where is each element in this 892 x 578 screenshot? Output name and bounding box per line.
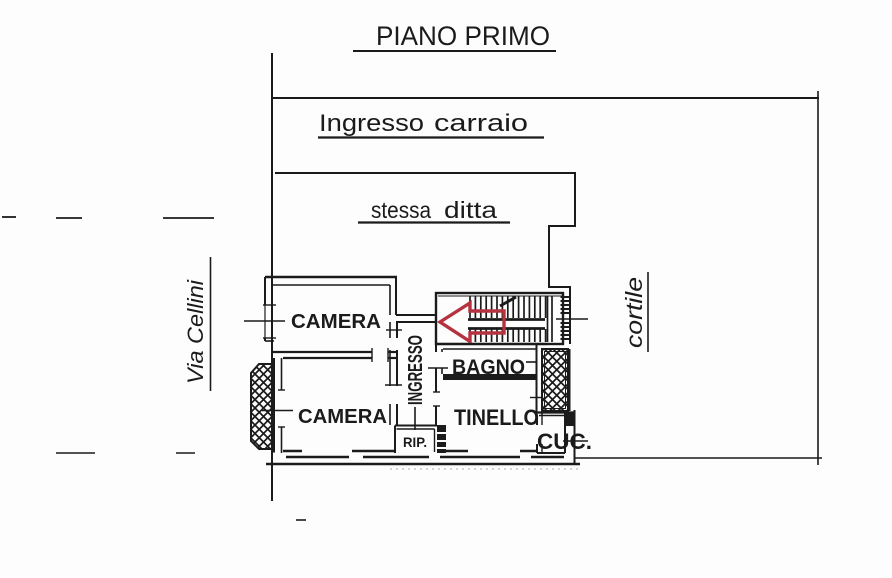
svg-text:carraio: carraio — [434, 110, 528, 137]
svg-text:ditta: ditta — [444, 197, 497, 223]
svg-text:CAMERA: CAMERA — [291, 311, 381, 333]
svg-text:CAMERA: CAMERA — [298, 406, 387, 428]
svg-text:INGRESSO: INGRESSO — [405, 335, 427, 405]
svg-text:BAGNO: BAGNO — [452, 355, 525, 379]
svg-text:TINELLO: TINELLO — [454, 405, 539, 430]
svg-text:Via Cellini: Via Cellini — [183, 279, 208, 384]
svg-text:stessa: stessa — [371, 197, 431, 223]
svg-text:CUC.: CUC. — [537, 429, 592, 454]
svg-text:PIANO PRIMO: PIANO PRIMO — [376, 21, 550, 51]
svg-text:Ingresso: Ingresso — [319, 110, 424, 137]
svg-text:cortile: cortile — [621, 277, 647, 348]
svg-text:RIP.: RIP. — [403, 434, 427, 450]
